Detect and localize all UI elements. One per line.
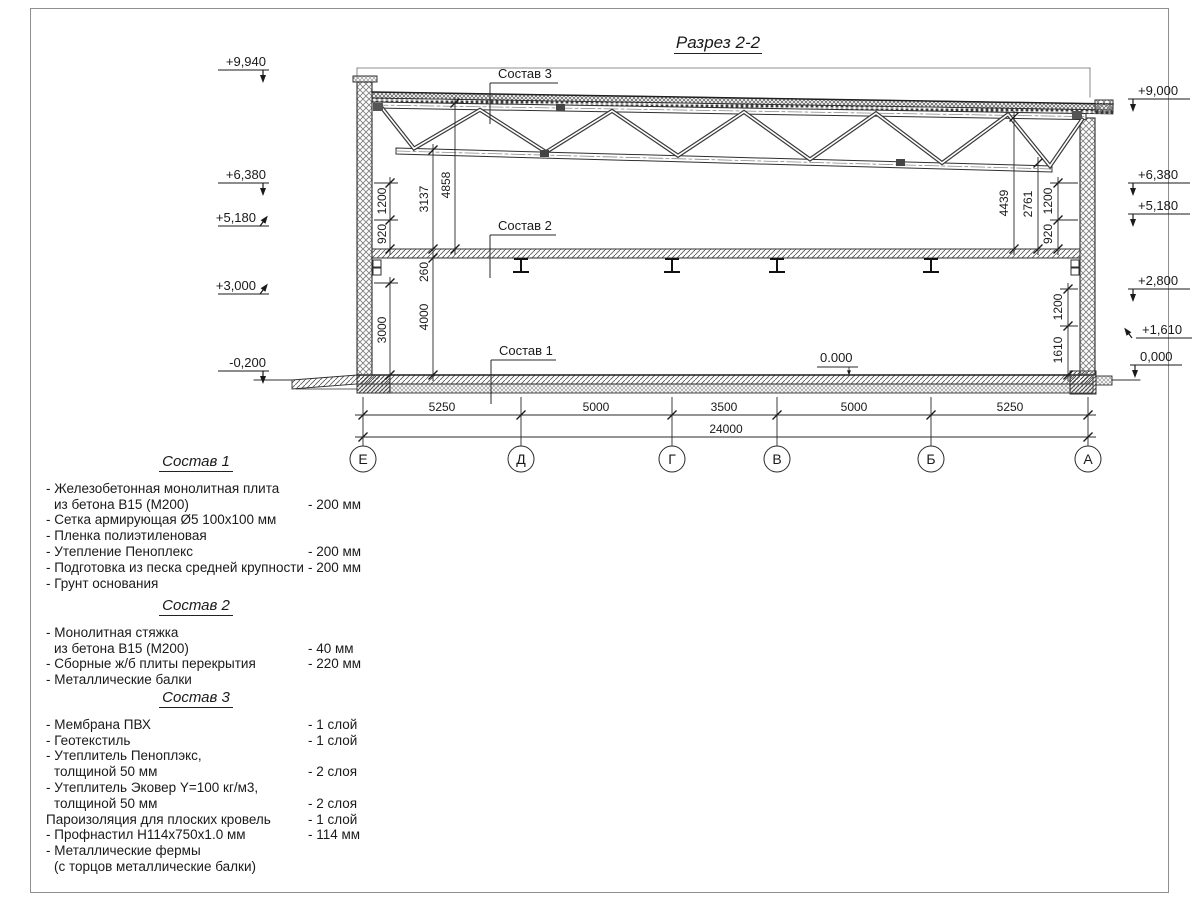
elevation-label: +5,180 bbox=[1138, 198, 1178, 213]
comp-row: - Мембрана ПВХ- 1 слой bbox=[46, 717, 346, 733]
elevation-label: 0,000 bbox=[1140, 349, 1173, 364]
comp-item-value: - 2 слоя bbox=[308, 796, 357, 812]
elevation-label: +1,610 bbox=[1142, 322, 1182, 337]
axis-label: Д bbox=[516, 451, 526, 467]
dim-label: 3500 bbox=[711, 400, 738, 414]
dim-label: 1200 bbox=[1051, 293, 1065, 320]
comp-item-text: - Мембрана ПВХ bbox=[46, 717, 151, 732]
comp-row: - Геотекстиль- 1 слой bbox=[46, 733, 346, 749]
drawing-sheet: Состав 3 Состав 2 Состав 1 0.000 +9,940 … bbox=[0, 0, 1200, 900]
dim-total-label: 24000 bbox=[709, 422, 743, 436]
comp-item-text: (с торцов металлические балки) bbox=[54, 859, 256, 874]
comp-row: толщиной 50 мм- 2 слоя bbox=[46, 796, 346, 812]
dim-label: 5250 bbox=[429, 400, 456, 414]
dim-label: 5250 bbox=[997, 400, 1024, 414]
elevation-mark: +1,610 bbox=[1122, 322, 1192, 340]
elevation-mark: +5,180 bbox=[216, 210, 270, 228]
comp-item-value: - 2 слоя bbox=[308, 764, 357, 780]
left-apron bbox=[254, 375, 357, 389]
dim-label: 4000 bbox=[417, 303, 431, 330]
elevation-mark: +9,000 bbox=[1128, 83, 1190, 112]
callout-sostav2-label: Состав 2 bbox=[498, 218, 552, 233]
comp-item-text: - Геотекстиль bbox=[46, 733, 130, 748]
axis-bubble: В bbox=[764, 446, 790, 472]
elevation-mark: +9,940 bbox=[218, 54, 269, 83]
comp-item-text: - Монолитная стяжка bbox=[46, 625, 178, 640]
comp-item-value: - 1 слой bbox=[308, 717, 357, 733]
top-extension-line bbox=[357, 68, 1090, 97]
comp-item-text: - Железобетонная монолитная плита bbox=[46, 481, 279, 496]
callout-zero-level: 0.000 bbox=[817, 350, 858, 375]
comp-item-text: - Металлические балки bbox=[46, 672, 192, 687]
right-wall bbox=[1080, 118, 1095, 375]
elevation-mark: +6,380 bbox=[1128, 167, 1190, 196]
dim-label: 5000 bbox=[841, 400, 868, 414]
comp-item-text: - Металлические фермы bbox=[46, 843, 201, 858]
left-wall bbox=[353, 76, 377, 375]
comp-item-text: Пароизоляция для плоских кровель bbox=[46, 812, 271, 827]
axis-label: Б bbox=[926, 451, 935, 467]
composition-3: Состав 3 - Мембрана ПВХ- 1 слой - Геотек… bbox=[46, 690, 346, 875]
comp-item-text: толщиной 50 мм bbox=[54, 764, 157, 779]
comp-item-text: - Грунт основания bbox=[46, 576, 158, 591]
elevation-mark: +6,380 bbox=[218, 167, 269, 196]
comp-item-text: из бетона В15 (М200) bbox=[54, 641, 189, 656]
comp-item-value: - 200 мм bbox=[308, 544, 361, 560]
comp-item-text: толщиной 50 мм bbox=[54, 796, 157, 811]
truss-gusset bbox=[540, 150, 549, 157]
ground-slab bbox=[357, 375, 1093, 393]
comp-row: - Утеплитель Пеноплэкс, bbox=[46, 748, 346, 764]
composition-1: Состав 1 - Железобетонная монолитная пли… bbox=[46, 454, 346, 591]
callout-sostav1: Состав 1 bbox=[491, 343, 556, 404]
comp-row: толщиной 50 мм- 2 слоя bbox=[46, 764, 346, 780]
dim-label: 4439 bbox=[997, 189, 1011, 216]
elevation-mark: +2,800 bbox=[1128, 273, 1190, 302]
dim-label: 4858 bbox=[439, 171, 453, 198]
truss-bearing-right bbox=[1072, 111, 1082, 119]
comp-row: - Утепление Пеноплекс- 200 мм bbox=[46, 544, 346, 560]
comp-row: - Металлические балки bbox=[46, 672, 346, 688]
truss-bearing-left bbox=[373, 103, 383, 111]
comp-row: - Подготовка из песка средней крупности-… bbox=[46, 560, 346, 576]
elevation-marks-left: +9,940 +6,380 +5,180 +3,000 -0,200 bbox=[216, 54, 270, 384]
elevation-label: +6,380 bbox=[1138, 167, 1178, 182]
dim-label: 3137 bbox=[417, 185, 431, 212]
roof-truss bbox=[373, 102, 1086, 172]
composition-3-heading: Состав 3 bbox=[46, 690, 346, 706]
elevation-mark: +5,180 bbox=[1128, 198, 1190, 227]
comp-item-text: - Сборные ж/б плиты перекрытия bbox=[46, 656, 256, 671]
steel-beams bbox=[514, 259, 938, 272]
elevation-label: -0,200 bbox=[229, 355, 266, 370]
elevation-label: +3,000 bbox=[216, 278, 256, 293]
dim-label: 260 bbox=[417, 262, 431, 282]
elevation-label: +9,940 bbox=[226, 54, 266, 69]
elevation-label: +5,180 bbox=[216, 210, 256, 225]
comp-row: - Грунт основания bbox=[46, 576, 346, 592]
comp-item-text: - Утепление Пеноплекс bbox=[46, 544, 193, 559]
page-title-text: Разрез 2-2 bbox=[674, 33, 762, 54]
comp-item-value: - 220 мм bbox=[308, 656, 361, 672]
callouts: Состав 3 Состав 2 Состав 1 0.000 bbox=[490, 66, 858, 404]
comp-row: - Монолитная стяжка bbox=[46, 625, 346, 641]
dim-label: 1200 bbox=[375, 187, 389, 214]
comp-row: из бетона В15 (М200)- 40 мм bbox=[46, 641, 346, 657]
comp-row: (с торцов металлические балки) bbox=[46, 859, 346, 875]
comp-row: Пароизоляция для плоских кровель- 1 слой bbox=[46, 812, 346, 828]
axis-label: Е bbox=[358, 451, 367, 467]
comp-item-text: - Сетка армирующая Ø5 100х100 мм bbox=[46, 512, 276, 527]
callout-sostav2: Состав 2 bbox=[490, 218, 556, 278]
dim-label: 920 bbox=[375, 224, 389, 244]
comp-row: - Железобетонная монолитная плита bbox=[46, 481, 346, 497]
axis-bubble: Б bbox=[918, 446, 944, 472]
elevation-label: +9,000 bbox=[1138, 83, 1178, 98]
axis-bubble: Д bbox=[508, 446, 534, 472]
composition-2: Состав 2 - Монолитная стяжка из бетона В… bbox=[46, 598, 346, 688]
dimensions-bottom: 5250 5000 3500 5000 5250 24000 bbox=[355, 397, 1096, 446]
elevation-marks-right: +9,000 +6,380 +5,180 +2,800 +1,610 0,000 bbox=[1122, 83, 1192, 378]
axis-label: А bbox=[1083, 451, 1093, 467]
axis-bubble: Г bbox=[659, 446, 685, 472]
elevation-mark: 0,000 bbox=[1130, 349, 1182, 378]
comp-item-value: - 200 мм bbox=[308, 560, 361, 576]
elevation-label: +6,380 bbox=[226, 167, 266, 182]
truss-gusset bbox=[896, 159, 905, 166]
comp-row: - Металлические фермы bbox=[46, 843, 346, 859]
comp-item-value: - 114 мм bbox=[308, 827, 360, 843]
composition-1-heading: Состав 1 bbox=[46, 454, 346, 470]
comp-item-value: - 200 мм bbox=[308, 497, 361, 513]
comp-row: - Профнастил Н114х750х1.0 мм- 114 мм bbox=[46, 827, 346, 843]
axis-bubble: А bbox=[1075, 446, 1101, 472]
axis-bubble: Е bbox=[350, 446, 376, 472]
comp-item-text: - Профнастил Н114х750х1.0 мм bbox=[46, 827, 246, 842]
page-title: Разрез 2-2 bbox=[648, 33, 788, 53]
left-foundation bbox=[357, 375, 390, 393]
comp-row: - Сборные ж/б плиты перекрытия- 220 мм bbox=[46, 656, 346, 672]
comp-row: - Пленка полиэтиленовая bbox=[46, 528, 346, 544]
dim-label: 2761 bbox=[1021, 190, 1035, 217]
dimensions-left: 1200 920 3137 4858 260 3000 4000 bbox=[374, 97, 464, 381]
composition-2-heading: Состав 2 bbox=[46, 598, 346, 614]
dim-label: 5000 bbox=[583, 400, 610, 414]
comp-item-text: - Утеплитель Эковер Y=100 кг/м3, bbox=[46, 780, 258, 795]
axis-label: В bbox=[772, 451, 781, 467]
comp-item-text: - Пленка полиэтиленовая bbox=[46, 528, 207, 543]
floor-slab bbox=[372, 249, 1080, 258]
elevation-label: +2,800 bbox=[1138, 273, 1178, 288]
zero-level-label: 0.000 bbox=[820, 350, 853, 365]
dim-label: 1200 bbox=[1041, 187, 1055, 214]
comp-item-value: - 40 мм bbox=[308, 641, 354, 657]
comp-item-text: - Подготовка из песка средней крупности bbox=[46, 560, 304, 575]
dim-label: 1610 bbox=[1051, 336, 1065, 363]
callout-sostav1-label: Состав 1 bbox=[499, 343, 553, 358]
dim-label: 3000 bbox=[375, 316, 389, 343]
comp-item-text: из бетона В15 (М200) bbox=[54, 497, 189, 512]
comp-item-value: - 1 слой bbox=[308, 733, 357, 749]
callout-sostav3-label: Состав 3 bbox=[498, 66, 552, 81]
comp-item-value: - 1 слой bbox=[308, 812, 357, 828]
axis-bubbles: Е Д Г В Б А bbox=[350, 446, 1101, 472]
elevation-mark: +3,000 bbox=[216, 278, 270, 296]
comp-row: - Сетка армирующая Ø5 100х100 мм bbox=[46, 512, 346, 528]
truss-gusset bbox=[556, 104, 565, 111]
comp-row: - Утеплитель Эковер Y=100 кг/м3, bbox=[46, 780, 346, 796]
comp-row: из бетона В15 (М200)- 200 мм bbox=[46, 497, 346, 513]
wall-beam-seats bbox=[373, 260, 1079, 275]
dim-label: 920 bbox=[1041, 224, 1055, 244]
axis-label: Г bbox=[668, 451, 676, 467]
comp-item-text: - Утеплитель Пеноплэкс, bbox=[46, 748, 202, 763]
